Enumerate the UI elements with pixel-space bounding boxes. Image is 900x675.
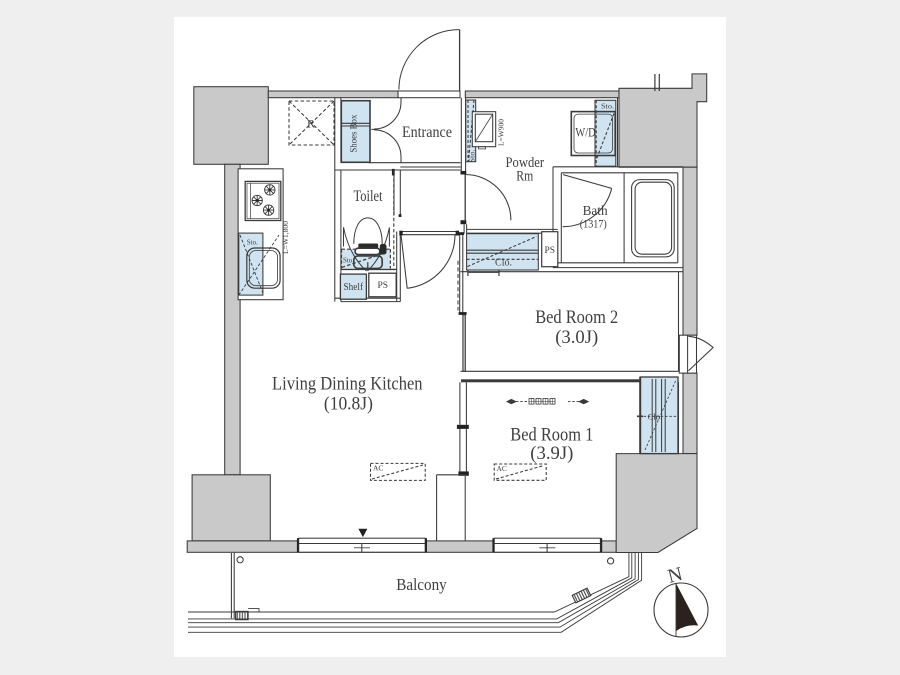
- svg-text:Sto.: Sto.: [247, 237, 258, 246]
- svg-text:Balcony: Balcony: [396, 575, 447, 594]
- svg-text:Sto.: Sto.: [469, 149, 477, 162]
- svg-text:Clo.: Clo.: [648, 412, 663, 422]
- svg-text:Sto.: Sto.: [343, 255, 354, 264]
- svg-text:Bed Room 2: Bed Room 2: [535, 307, 618, 328]
- svg-text:R: R: [307, 117, 315, 131]
- svg-text:Toilet: Toilet: [354, 188, 384, 205]
- svg-text:(3.0J): (3.0J): [555, 327, 598, 348]
- svg-text:PS: PS: [378, 281, 389, 291]
- svg-text:Sto.: Sto.: [601, 102, 614, 111]
- svg-text:Living Dining Kitchen: Living Dining Kitchen: [272, 374, 423, 395]
- svg-text:(10.8J): (10.8J): [324, 394, 373, 415]
- svg-text:W/D: W/D: [575, 126, 595, 140]
- svg-text:AC: AC: [497, 464, 507, 473]
- svg-text:Rm: Rm: [516, 169, 533, 185]
- svg-text:L=W900: L=W900: [498, 118, 506, 146]
- svg-text:AC: AC: [373, 464, 383, 473]
- svg-text:(1317): (1317): [580, 216, 607, 230]
- svg-text:Shoes Box: Shoes Box: [349, 114, 359, 152]
- svg-text:Entrance: Entrance: [402, 124, 452, 141]
- svg-text:L=W1,800: L=W1,800: [282, 220, 290, 254]
- svg-text:(3.9J): (3.9J): [530, 443, 573, 464]
- svg-text:PS: PS: [545, 246, 556, 256]
- svg-text:Clo.: Clo.: [495, 258, 512, 269]
- svg-text:Shelf: Shelf: [344, 282, 364, 293]
